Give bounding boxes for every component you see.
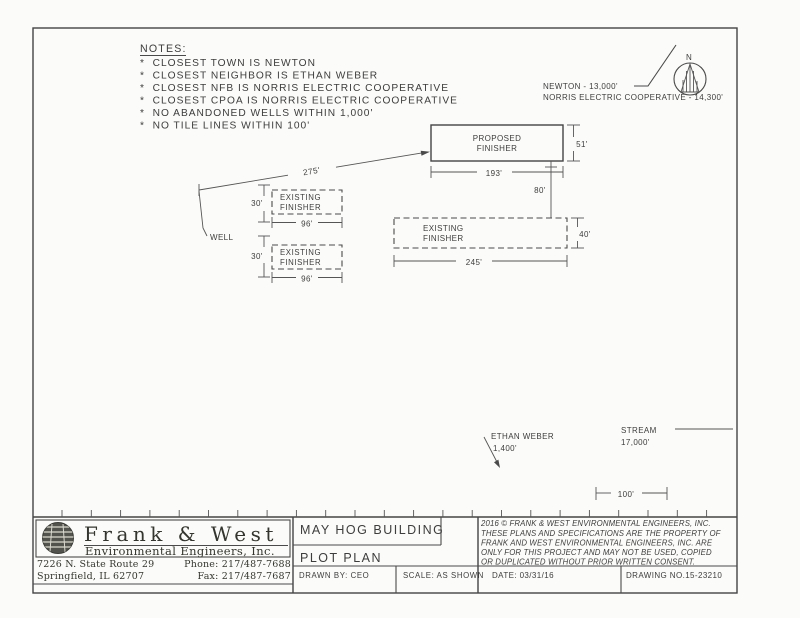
stream-label: STREAM: [621, 426, 657, 435]
north-label: N: [686, 53, 692, 62]
existing-finisher-left-bottom-label: FINISHER: [280, 258, 321, 267]
leader-arrowhead-icon: [421, 151, 430, 156]
dim-51-label: 51': [576, 140, 588, 149]
company-address-line1: 7226 N. State Route 29: [37, 559, 154, 570]
proposed-finisher-outline: [431, 125, 563, 161]
company-subtitle: Environmental Engineers, Inc.: [85, 544, 275, 558]
company-name: Frank & West: [84, 522, 278, 546]
ethan-weber-block: ETHAN WEBER 1,400': [484, 432, 554, 468]
note-item: * CLOSEST NFB IS NORRIS ELECTRIC COOPERA…: [140, 83, 449, 94]
newton-leader-line: [634, 45, 676, 86]
note-item: * CLOSEST CPOA IS NORRIS ELECTRIC COOPER…: [140, 96, 458, 107]
ethan-weber-distance: 1,400': [493, 444, 517, 453]
drawing-border: [33, 28, 737, 593]
sheet-title: PLOT PLAN: [300, 551, 382, 565]
scale-bar: 100': [596, 487, 667, 500]
company-fax: Fax: 217/487-7687: [198, 571, 291, 582]
existing-finisher-right: EXISTING FINISHER 40' 245': [394, 218, 591, 267]
dim-80-label: 80': [534, 186, 546, 195]
dim-40-label: 40': [579, 230, 591, 239]
copyright-panel: 2016 © FRANK & WEST ENVIRONMENTAL ENGINE…: [478, 519, 737, 593]
newton-distance: NEWTON - 13,000': [543, 82, 618, 91]
note-item: * NO ABANDONED WELLS WITHIN 1,000': [140, 108, 373, 119]
existing-finisher-left-top-label: EXISTING: [280, 193, 321, 202]
well-drop-line: [199, 191, 207, 236]
copyright-line: OR DUPLICATED WITHOUT PRIOR WRITTEN CONS…: [481, 558, 695, 567]
company-panel: Frank & West Environmental Engineers, In…: [33, 520, 293, 584]
project-panel: MAY HOG BUILDING PLOT PLAN DRAWN BY: CEO…: [293, 517, 484, 593]
well-leader-line: [199, 175, 288, 190]
north-arrow-block: N NEWTON - 13,000' NORRIS ELECTRIC COOPE…: [543, 45, 723, 102]
existing-finisher-left-bottom-label: EXISTING: [280, 248, 321, 257]
title-block-ruler-ticks: [62, 510, 707, 517]
dim-96-bottom-label: 96': [301, 275, 313, 284]
well-leader-line: [336, 152, 425, 167]
dim-96-top: 96': [272, 217, 342, 229]
norris-distance: NORRIS ELECTRIC COOPERATIVE - 14,300': [543, 93, 723, 102]
copyright-line: 2016 © FRANK & WEST ENVIRONMENTAL ENGINE…: [480, 519, 711, 528]
dim-193: 193': [431, 166, 563, 178]
dim-51: 51': [567, 125, 588, 161]
project-title: MAY HOG BUILDING: [300, 523, 444, 537]
existing-finisher-left-top-label: FINISHER: [280, 203, 321, 212]
copyright-line: ONLY FOR THIS PROJECT AND MAY NOT BE USE…: [481, 548, 712, 557]
well-label: WELL: [210, 233, 234, 242]
ethan-arrowhead-icon: [494, 460, 500, 468]
note-item: * CLOSEST NEIGHBOR IS ETHAN WEBER: [140, 71, 378, 82]
dim-96-top-label: 96': [301, 220, 313, 229]
stream-block: STREAM 17,000': [621, 426, 733, 447]
dim-96-bottom: 96': [272, 272, 342, 284]
company-phone: Phone: 217/487-7688: [184, 559, 291, 570]
note-item: * CLOSEST TOWN IS NEWTON: [140, 58, 316, 69]
ethan-weber-label: ETHAN WEBER: [491, 432, 554, 441]
drawing-number: DRAWING NO.15-23210: [626, 571, 722, 580]
dim-30-bottom: 30': [251, 236, 270, 277]
dim-30-top: 30': [251, 185, 270, 222]
dim-30-bottom-label: 30': [251, 252, 263, 261]
copyright-line: THESE PLANS AND SPECIFICATIONS ARE THE P…: [481, 529, 722, 538]
existing-finisher-right-label: EXISTING: [423, 224, 464, 233]
dim-30-top-label: 30': [251, 199, 263, 208]
existing-finisher-left-bottom: EXISTING FINISHER 96' 30': [251, 236, 342, 284]
dim-245-label: 245': [466, 258, 483, 267]
proposed-finisher: PROPOSED FINISHER 51' 193' 80': [431, 125, 588, 218]
copyright-line: FRANK AND WEST ENVIRONMENTAL ENGINEERS, …: [481, 539, 713, 548]
plot-plan-sheet: NOTES: * CLOSEST TOWN IS NEWTON * CLOSES…: [0, 0, 800, 618]
title-block: Frank & West Environmental Engineers, In…: [33, 510, 737, 593]
notes-title: NOTES:: [140, 43, 187, 55]
proposed-finisher-label: FINISHER: [477, 144, 518, 153]
company-address-line2: Springfield, IL 62707: [37, 571, 144, 582]
dim-193-label: 193': [486, 169, 503, 178]
date-field: DATE: 03/31/16: [492, 571, 554, 580]
dim-275-label: 275': [302, 166, 320, 178]
proposed-finisher-label: PROPOSED: [473, 134, 522, 143]
drawn-by: DRAWN BY: CEO: [299, 571, 369, 580]
dim-245: 245': [394, 255, 567, 267]
dim-80: 80': [534, 161, 557, 218]
existing-finisher-right-outline: [394, 218, 567, 248]
scale-note: SCALE: AS SHOWN: [403, 571, 484, 580]
company-logo-icon: [41, 523, 75, 554]
north-arrow-icon: [674, 63, 706, 95]
notes-block: NOTES: * CLOSEST TOWN IS NEWTON * CLOSES…: [140, 43, 458, 132]
stream-distance: 17,000': [621, 438, 650, 447]
scale-bar-label: 100': [618, 490, 635, 499]
note-item: * NO TILE LINES WITHIN 100': [140, 121, 310, 132]
existing-finisher-right-label: FINISHER: [423, 234, 464, 243]
existing-finisher-left-top: EXISTING FINISHER 96' 30': [251, 185, 342, 229]
dim-40: 40': [571, 218, 591, 248]
